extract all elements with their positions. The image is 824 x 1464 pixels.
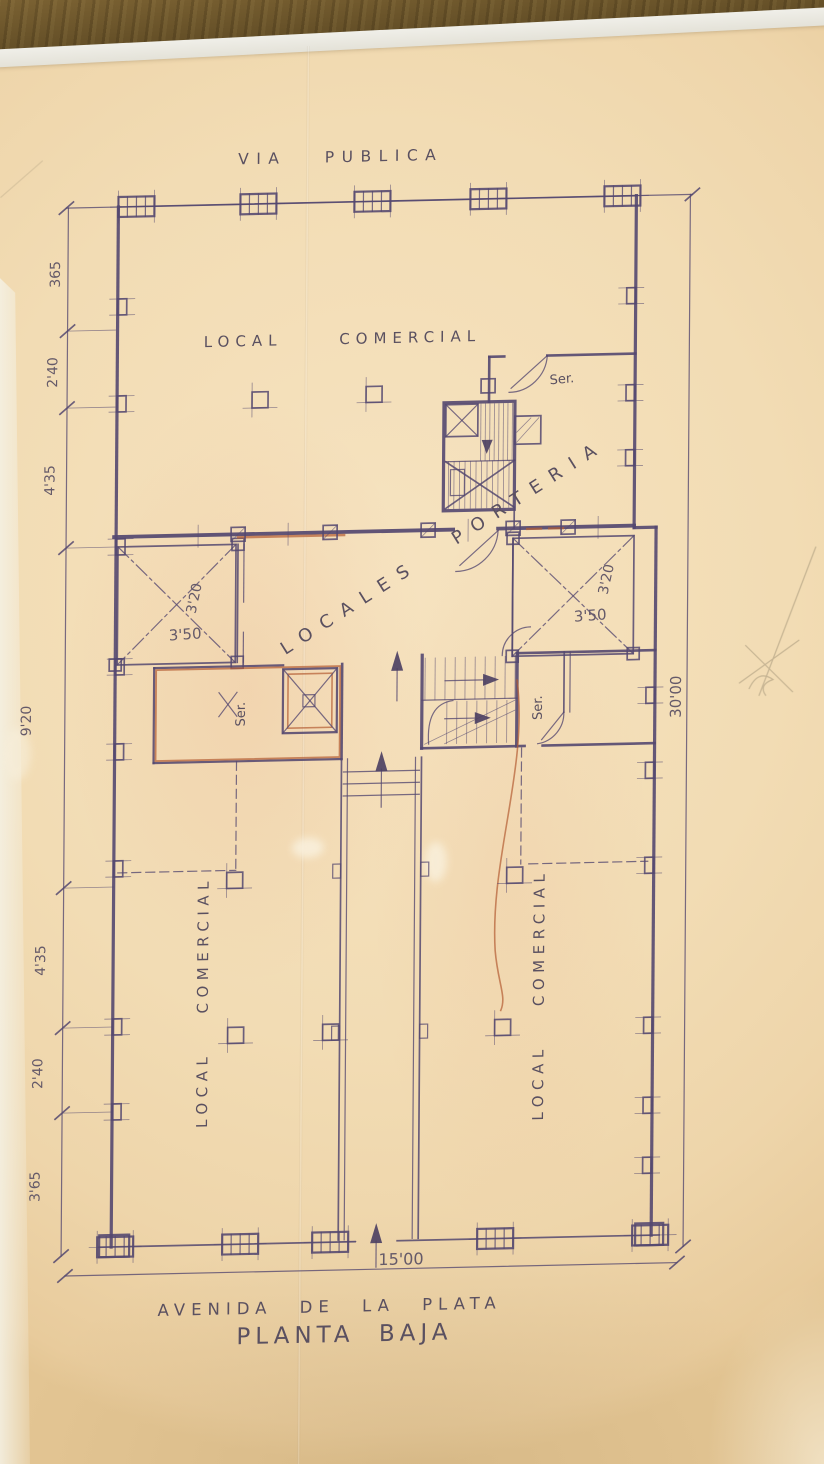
label-dim-365-top: 365 (48, 261, 64, 288)
label-room-right-width: 3'50 (573, 605, 607, 625)
label-avenida: AVENIDA DE LA PLATA (158, 1293, 502, 1320)
label-ser-right: Ser. (531, 695, 546, 720)
label-ser-top: Ser. (549, 371, 574, 388)
photo-of-floor-plan: VIA PUBLICA LOCAL COMERCIAL Ser. LOCALES… (0, 0, 824, 1464)
label-shop-left: LOCAL COMERCIAL (193, 876, 213, 1128)
label-dim-435-bottom: 4'35 (33, 945, 49, 976)
label-room-right-depth: 3'20 (596, 563, 618, 596)
label-via-publica: VIA PUBLICA (238, 146, 443, 169)
label-ser-left: Ser. (234, 702, 249, 727)
floor-plan-drawing: VIA PUBLICA LOCAL COMERCIAL Ser. LOCALES… (0, 0, 824, 1464)
label-planta-baja: PLANTA BAJA (236, 1319, 452, 1350)
dimension-lines (52, 188, 700, 1282)
label-room-left-depth: 3'20 (184, 582, 206, 615)
entry-steps (340, 750, 420, 1268)
central-staircase (391, 627, 531, 745)
label-dim-240-bottom: 2'40 (30, 1058, 46, 1089)
pencil-scribble (0, 144, 819, 713)
label-dim-total-depth: 30'00 (667, 675, 685, 718)
label-dim-920: 9'20 (19, 705, 35, 736)
label-dim-240-top: 2'40 (45, 357, 61, 388)
label-shop-right: LOCAL COMERCIAL (529, 868, 549, 1120)
label-shop-top: LOCAL COMERCIAL (204, 327, 481, 351)
label-room-left-width: 3'50 (168, 624, 202, 644)
label-dim-435-top: 4'35 (42, 465, 58, 496)
extension-stubs (62, 330, 117, 1113)
label-dim-365-bottom: 3'65 (27, 1171, 43, 1202)
label-dim-total-width: 15'00 (378, 1249, 423, 1269)
walls (99, 195, 670, 1257)
sepia-accents (235, 528, 563, 1016)
